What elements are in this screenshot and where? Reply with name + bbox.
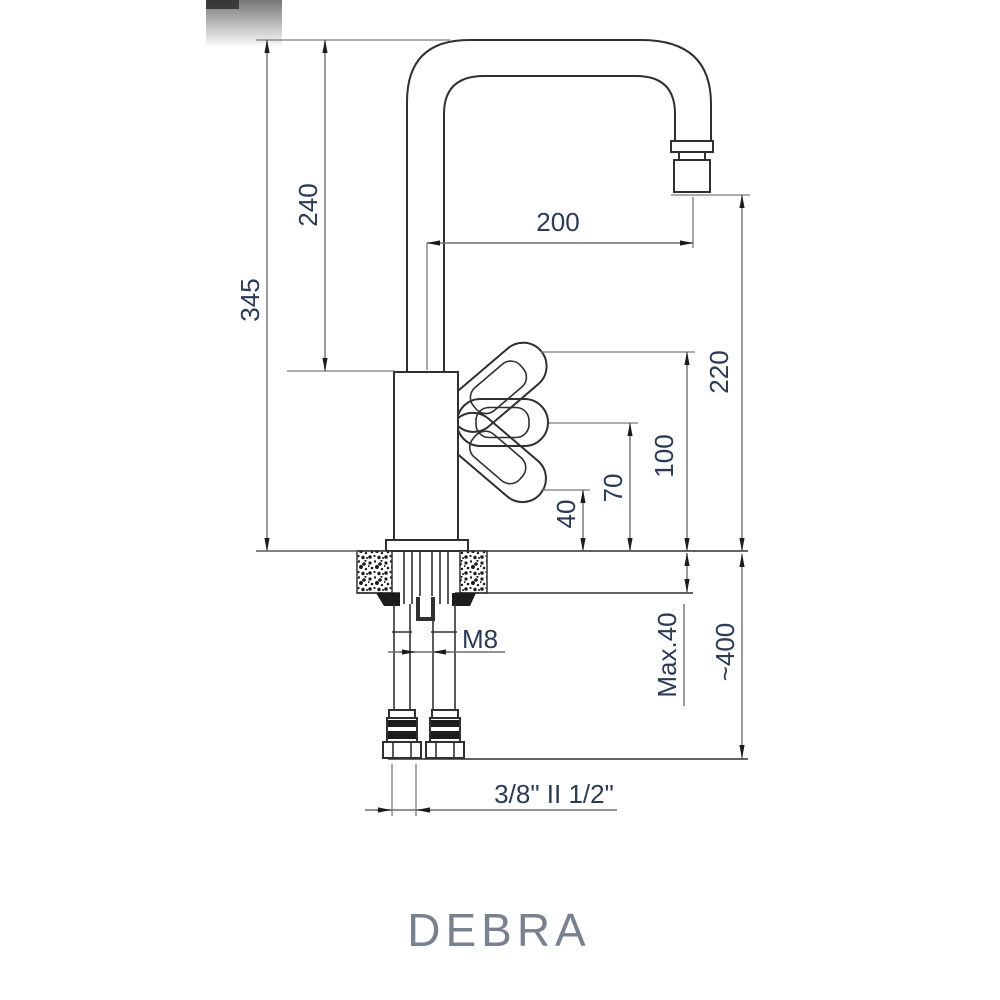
- handle-lever-middle: [457, 399, 548, 446]
- base-flange: [386, 540, 468, 551]
- hose-connector-right: [426, 710, 464, 758]
- dimension-label-220: 220: [704, 350, 734, 393]
- dimension-345: 345: [235, 40, 357, 551]
- dimension-label-hose-connection: 3/8" II 1/2": [494, 779, 614, 809]
- counter-material-right: [460, 551, 487, 593]
- dimension-label-40: 40: [551, 500, 581, 529]
- dimension-label-m8: M8: [462, 624, 498, 654]
- dimension-label-100: 100: [649, 434, 679, 477]
- dimension-m8: M8: [388, 624, 505, 654]
- dimension-hose-connection: 3/8" II 1/2": [365, 764, 617, 816]
- dimension-240: 240: [287, 40, 395, 371]
- dimension-max40: Max.40: [652, 553, 687, 706]
- spout-outer-edge: [407, 40, 711, 372]
- dimension-label-max40: Max.40: [652, 612, 682, 697]
- dimension-label-70: 70: [598, 474, 628, 503]
- hose-connector-left: [383, 710, 421, 758]
- dimension-200: 200: [427, 197, 693, 370]
- crop-artifact: [206, 0, 282, 48]
- supply-hoses: [383, 604, 748, 759]
- dimension-220: 220: [671, 195, 750, 551]
- dimension-70: 70: [549, 423, 638, 551]
- countertop-section: [256, 551, 748, 619]
- dimension-40: 40: [541, 490, 590, 551]
- m8-stud-nut: [418, 597, 433, 619]
- product-title: DEBRA: [407, 904, 590, 956]
- counter-material-left: [357, 551, 392, 593]
- dimension-label-345: 345: [235, 278, 265, 321]
- aerator: [671, 141, 713, 192]
- dimension-label-240: 240: [293, 183, 323, 226]
- technical-drawing-canvas: 345 240 200 220 100 70: [0, 0, 1000, 1000]
- dimension-label-200: 200: [536, 207, 579, 237]
- dimensions: 345 240 200 220 100 70: [235, 40, 750, 816]
- dimension-400: ~400: [710, 554, 742, 758]
- faucet-body: [394, 372, 458, 540]
- dimension-label-400: ~400: [710, 623, 740, 682]
- clamp-washer-left: [376, 593, 400, 606]
